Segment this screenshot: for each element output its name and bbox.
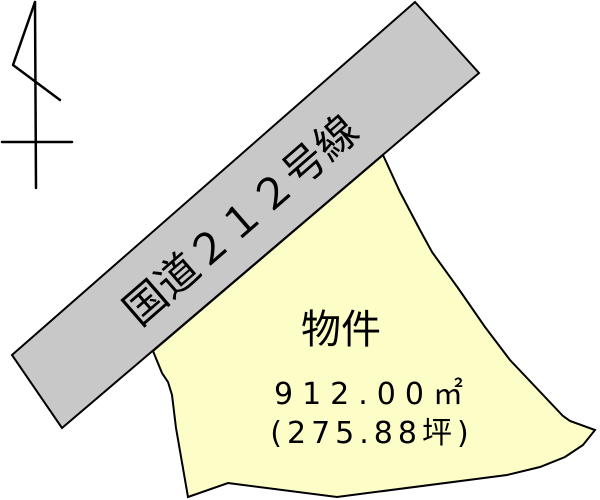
- parcel-label: 物件: [301, 297, 381, 355]
- parcel-area-tsubo: (275.88坪): [270, 408, 473, 452]
- site-plan-canvas: 国道２１２号線 物件 912.00㎡ (275.88坪): [0, 0, 600, 500]
- parcel-area-m2: 912.00㎡: [274, 369, 472, 413]
- north-arrow-shaft: [35, 2, 36, 188]
- north-arrow-icon: [2, 2, 72, 188]
